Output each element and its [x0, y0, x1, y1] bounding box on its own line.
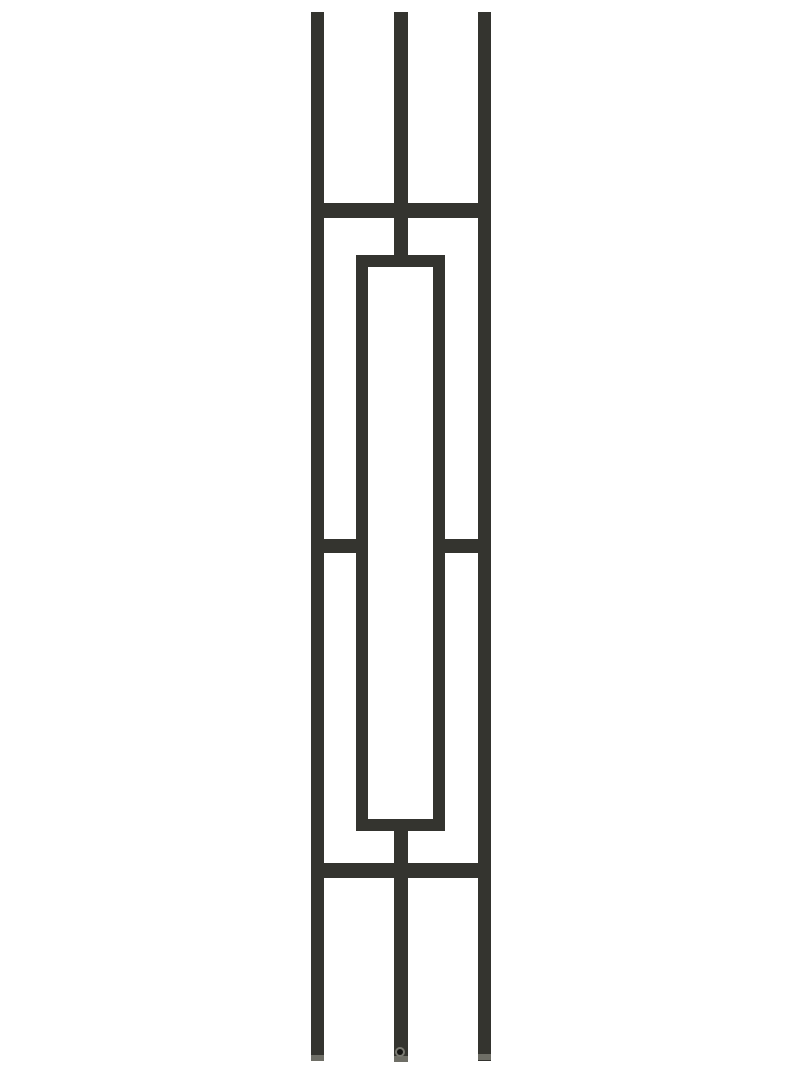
center-vertical-bar-lower: [394, 822, 408, 1062]
right-vertical-bar: [478, 12, 491, 1061]
center-bar-end-cap: [394, 1056, 408, 1062]
center-vertical-bar-upper: [394, 12, 408, 262]
baluster-drawing: [0, 0, 800, 1067]
left-bar-end-cap: [311, 1055, 324, 1061]
left-vertical-bar: [311, 12, 324, 1061]
top-horizontal-rail: [311, 203, 491, 218]
baluster-product-photo: [0, 0, 800, 1067]
set-screw-hole: [397, 1049, 403, 1055]
right-bar-end-cap: [478, 1054, 491, 1060]
bottom-horizontal-rail: [311, 863, 491, 878]
